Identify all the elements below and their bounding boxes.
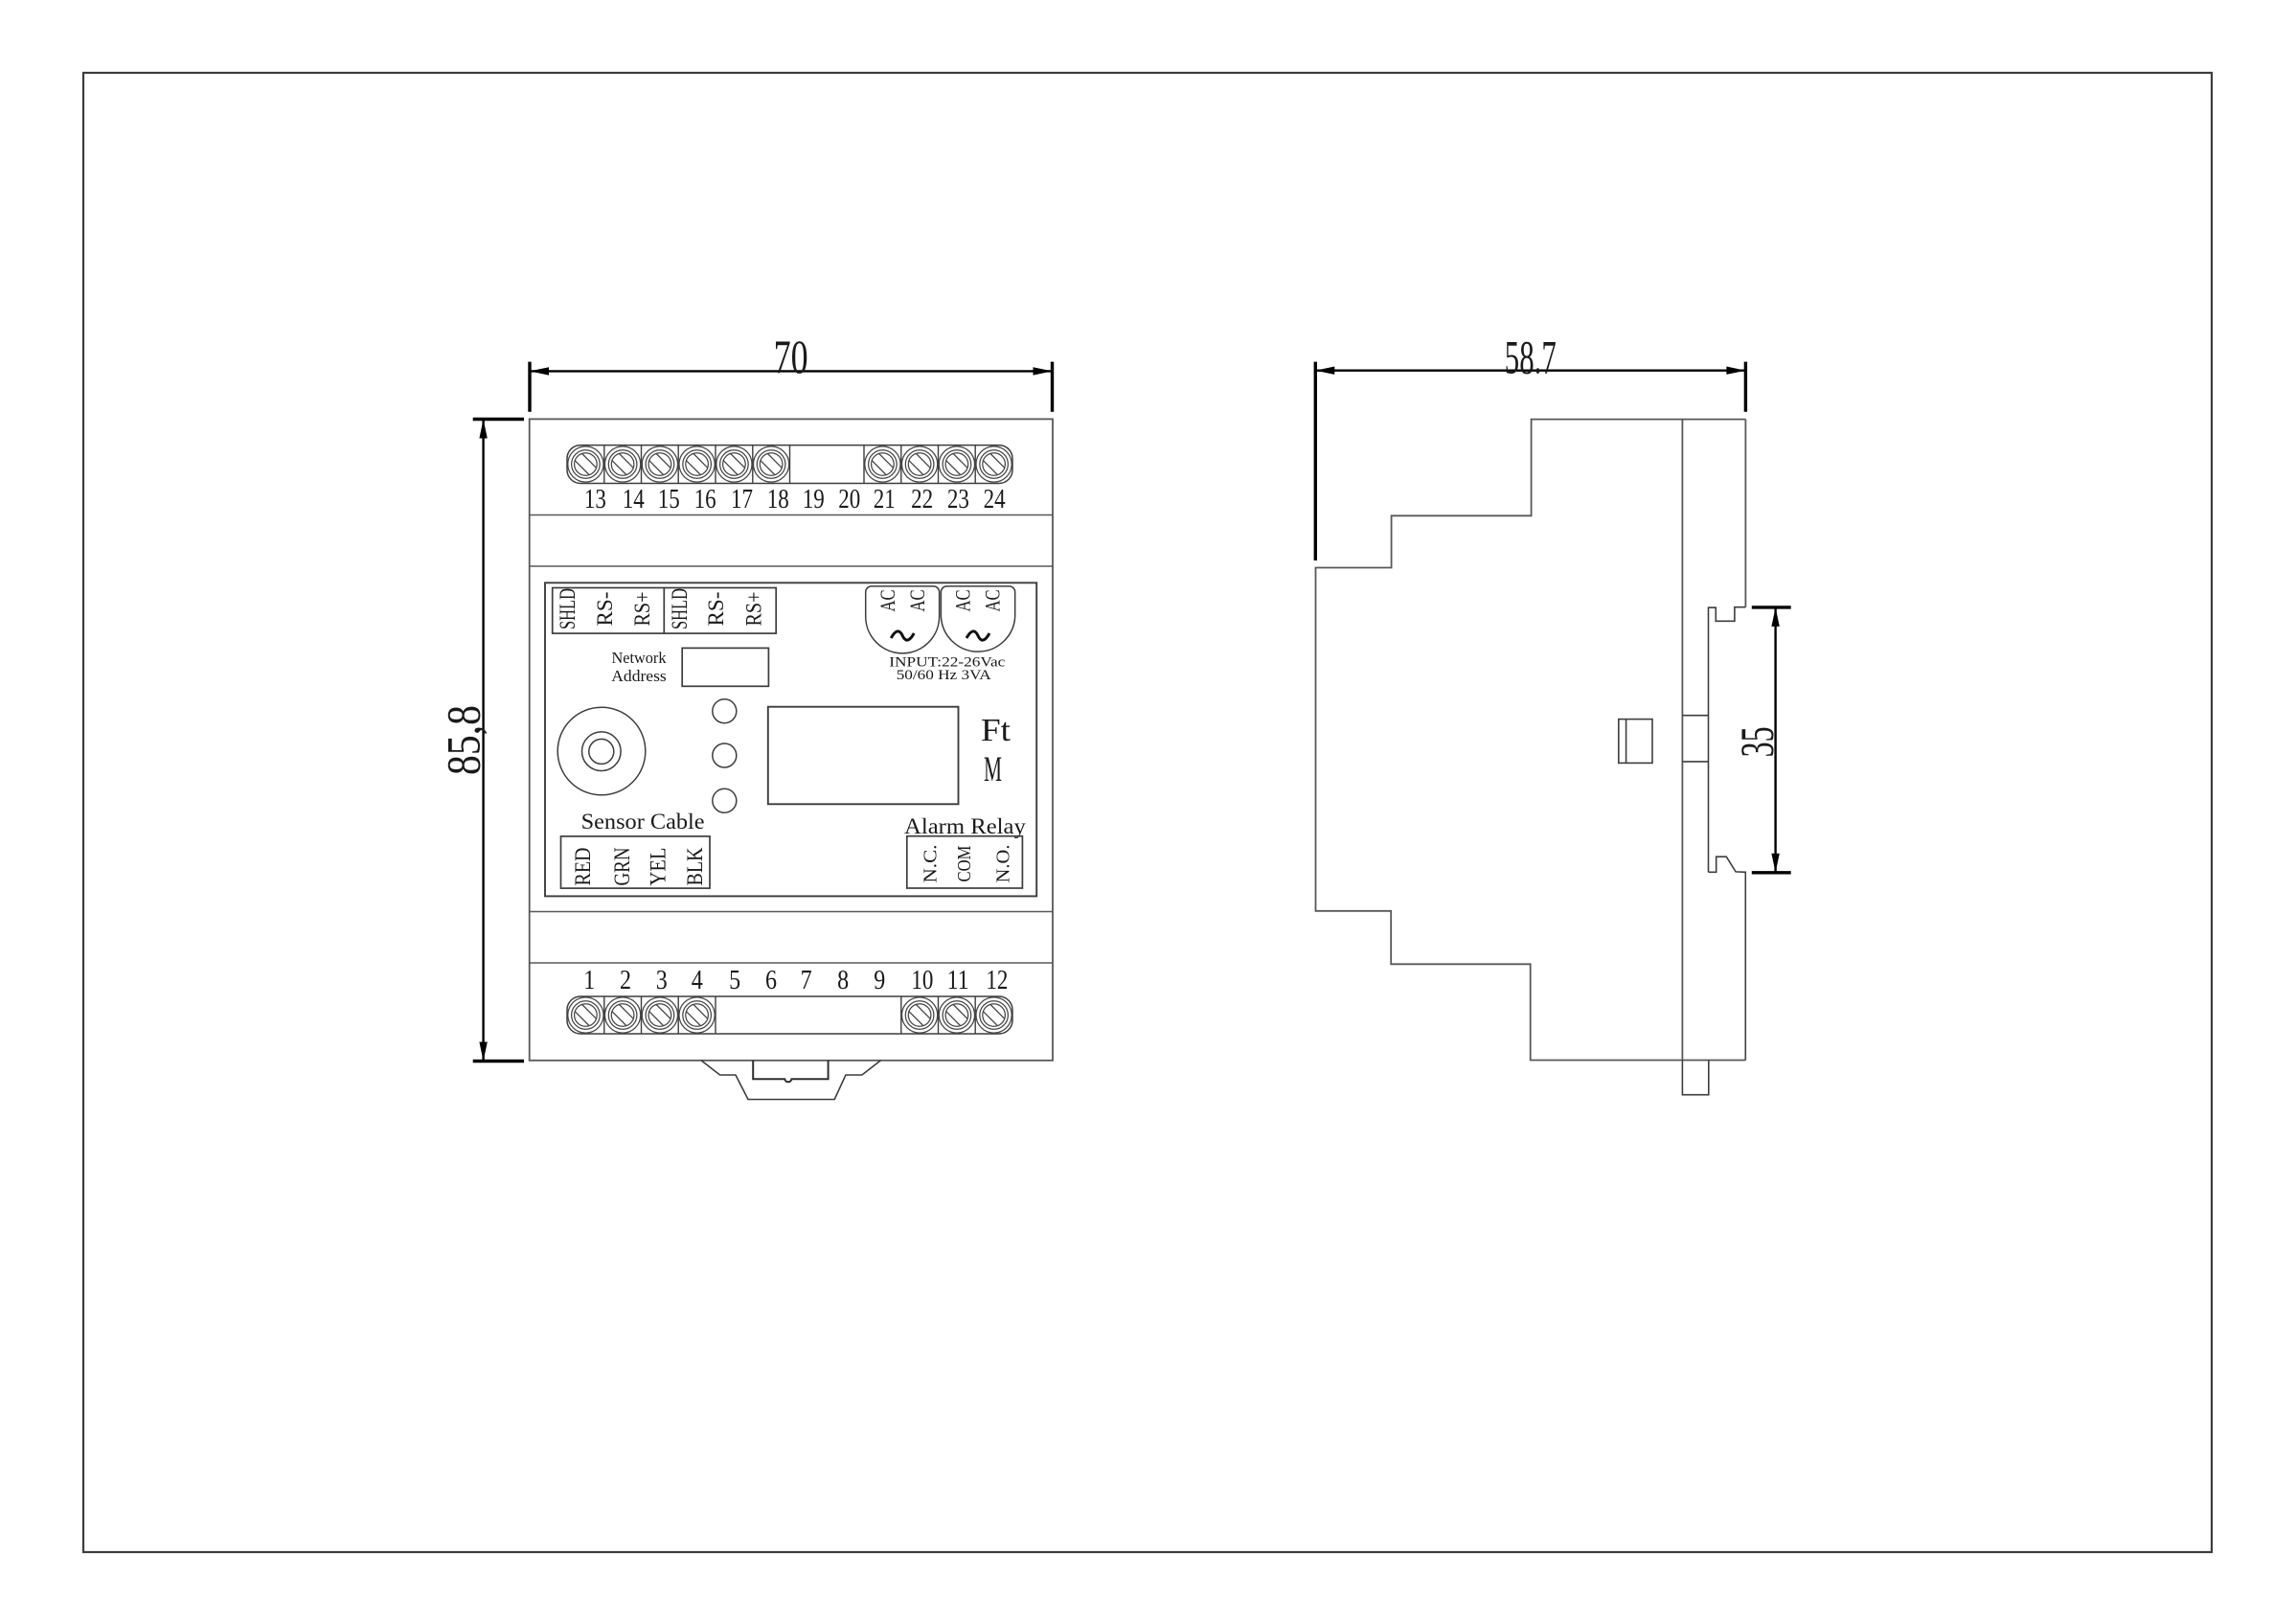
svg-text:85,8: 85,8	[437, 705, 490, 775]
svg-text:19: 19	[803, 484, 825, 514]
svg-text:18: 18	[767, 484, 789, 514]
svg-text:RS+: RS+	[742, 592, 767, 627]
svg-text:M: M	[984, 750, 1002, 789]
svg-text:AC: AC	[875, 590, 899, 612]
svg-text:11: 11	[947, 965, 969, 995]
svg-text:RS-: RS-	[593, 592, 618, 627]
svg-text:AC: AC	[951, 590, 975, 612]
svg-text:Address: Address	[611, 667, 667, 685]
svg-text:35: 35	[1730, 726, 1784, 757]
svg-text:N.C.: N.C.	[920, 845, 941, 883]
svg-text:RED: RED	[571, 848, 595, 886]
svg-text:Network: Network	[612, 649, 667, 667]
svg-text:24: 24	[984, 484, 1006, 514]
svg-text:5: 5	[729, 965, 740, 995]
svg-text:50/60 Hz 3VA: 50/60 Hz 3VA	[897, 668, 992, 683]
svg-text:AC: AC	[981, 590, 1005, 612]
svg-text:21: 21	[874, 484, 896, 514]
svg-text:3: 3	[656, 965, 668, 995]
svg-text:Ft: Ft	[981, 713, 1012, 748]
svg-text:70: 70	[774, 330, 808, 383]
svg-text:6: 6	[765, 965, 777, 995]
svg-text:AC: AC	[905, 590, 929, 612]
svg-text:YEL: YEL	[647, 848, 671, 886]
svg-text:8: 8	[837, 965, 849, 995]
svg-text:58.7: 58.7	[1505, 331, 1557, 384]
svg-text:17: 17	[731, 484, 753, 514]
svg-text:N.O.: N.O.	[993, 845, 1014, 883]
svg-text:2: 2	[620, 965, 631, 995]
svg-text:15: 15	[658, 484, 680, 514]
svg-text:22: 22	[911, 484, 933, 514]
svg-text:14: 14	[623, 484, 645, 514]
svg-text:RS+: RS+	[630, 592, 655, 627]
svg-text:COM: COM	[954, 845, 975, 881]
svg-text:4: 4	[692, 965, 703, 995]
svg-text:RS-: RS-	[704, 592, 729, 627]
svg-text:GRN: GRN	[610, 847, 634, 885]
svg-text:7: 7	[801, 965, 812, 995]
svg-text:Sensor Cable: Sensor Cable	[581, 810, 705, 834]
svg-text:16: 16	[694, 484, 716, 514]
svg-text:23: 23	[947, 484, 969, 514]
svg-text:SHLD: SHLD	[556, 588, 580, 629]
svg-text:13: 13	[584, 484, 606, 514]
svg-text:12: 12	[986, 965, 1008, 995]
svg-text:BLK: BLK	[683, 847, 707, 885]
svg-text:20: 20	[838, 484, 860, 514]
svg-text:SHLD: SHLD	[668, 588, 693, 629]
svg-text:1: 1	[583, 965, 595, 995]
svg-text:10: 10	[911, 965, 933, 995]
svg-text:9: 9	[874, 965, 885, 995]
